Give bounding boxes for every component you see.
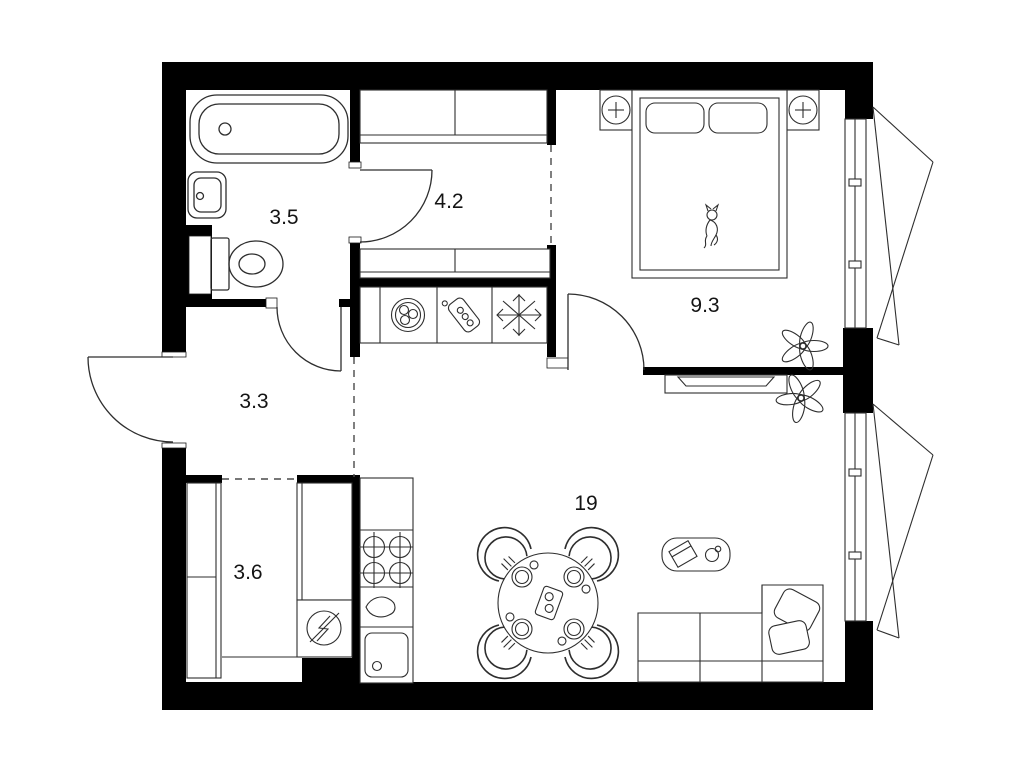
entrance-jamb-top (162, 352, 186, 357)
corridor-door-jamb (266, 298, 277, 308)
bathroom-to-corridor-door door-swing-icon (277, 307, 341, 371)
kitchen-sink-icon (365, 633, 408, 677)
bedroom-window (845, 107, 933, 345)
window-casement-icon (873, 404, 933, 638)
tall-cabinet (297, 483, 352, 600)
entrance-door door-swing-icon (88, 357, 173, 442)
bathtub-icon (190, 95, 348, 163)
nightstand-left (600, 90, 632, 130)
bedroom-door door-swing-icon (568, 294, 644, 370)
wall-left-lower (162, 448, 186, 710)
bedroom-area-label: 9.3 (690, 294, 719, 317)
duct-shaft-icon (189, 236, 211, 294)
wall-bathroom-east-lower (350, 242, 360, 357)
wall-right-bottom-corner (845, 621, 873, 710)
toilet-icon (211, 238, 283, 290)
kitchen-run (359, 478, 413, 683)
wall-bathroom-east-upper (350, 90, 360, 168)
storage-room-fixtures (187, 483, 352, 678)
wall-storage-north-left (186, 475, 222, 483)
wall-storage-east (352, 483, 360, 683)
corridor-area-label: 3.3 (239, 390, 268, 413)
plant-icon (780, 321, 828, 372)
wall-bedroom-west-upper (547, 88, 556, 145)
wall-left-upper (162, 90, 186, 353)
sofa-icon (638, 585, 823, 682)
bathroom-door-jamb-top (349, 162, 361, 168)
tv-console-icon (665, 375, 787, 393)
wall-storage-south-stub (302, 658, 360, 682)
floor-plan-drawing: 3.5 4.2 3.3 3.6 9.3 19 (0, 0, 1024, 768)
bathroom-to-hallway-door door-swing-icon (360, 170, 432, 242)
hallway-storage (360, 90, 550, 343)
coffee-table-icon (662, 538, 730, 571)
living-room-window (845, 404, 933, 638)
bedroom-door-jamb (547, 358, 568, 368)
appliance-counter (360, 287, 547, 343)
wall-bathroom-south-stub (339, 299, 350, 307)
nightstand-right (787, 90, 819, 130)
wardrobe-icon (360, 90, 547, 143)
hallway-area-label: 4.2 (434, 190, 463, 213)
wall-bottom (162, 682, 873, 710)
storage-area-label: 3.6 (233, 561, 262, 584)
wall-top (162, 62, 873, 90)
electric-panel-icon (297, 600, 352, 657)
floor-plan-page: 3.5 4.2 3.3 3.6 9.3 19 (0, 0, 1024, 768)
bathroom-area-label: 3.5 (269, 206, 298, 229)
bedroom-furniture (600, 90, 819, 278)
living-kitchen-area-label: 19 (574, 492, 597, 515)
wall-appliance-top (360, 278, 547, 287)
wall-right-top-corner (845, 62, 873, 119)
dining-set (478, 528, 619, 679)
wall-right-pier (843, 328, 873, 413)
wall-storage-north-right (297, 475, 360, 483)
wall-bedroom-south (643, 367, 845, 375)
washbasin-icon (188, 172, 226, 218)
entrance-jamb-bottom (162, 443, 186, 448)
bathroom-door-jamb-bottom (349, 237, 361, 243)
double-bed-icon (632, 90, 787, 278)
window-casement-icon (873, 107, 933, 345)
wardrobe-icon (360, 249, 550, 278)
